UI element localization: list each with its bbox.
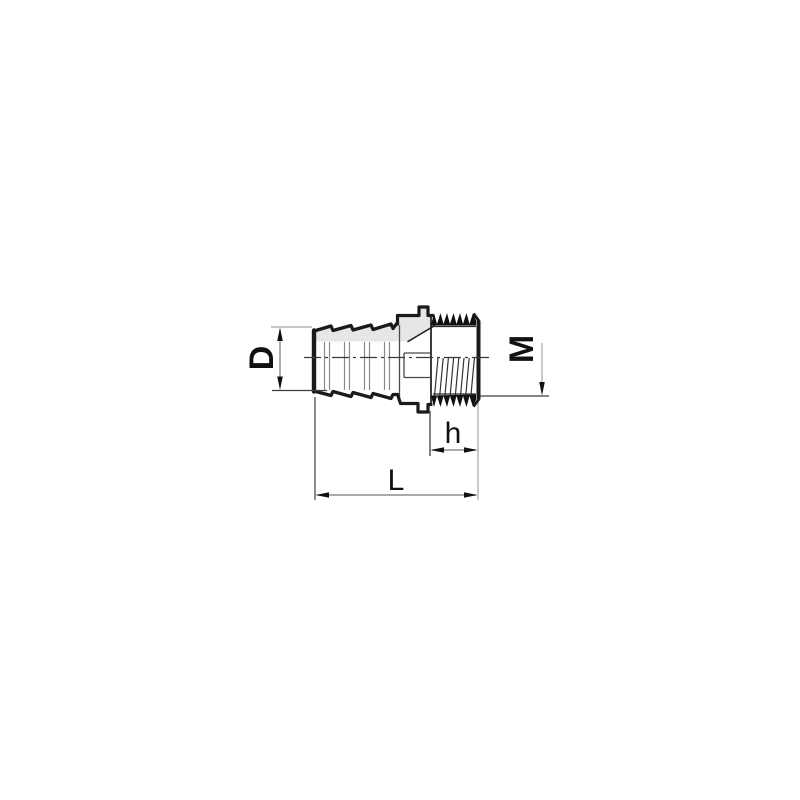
dimension-m: M <box>480 335 549 396</box>
thread-teeth-top <box>431 313 476 326</box>
technical-drawing: D M h L <box>0 0 800 800</box>
barb-bottom-profile <box>314 391 398 399</box>
dim-m-label: M <box>503 335 541 363</box>
dim-h-label: h <box>445 417 462 450</box>
dim-h-arrow-left <box>431 447 445 453</box>
dim-l-arrow-left <box>316 492 330 498</box>
dim-d-label: D <box>243 346 281 371</box>
dim-l-arrow-right <box>464 492 478 498</box>
dim-l-label: L <box>388 464 405 497</box>
dim-h-arrow-right <box>464 447 478 453</box>
dimension-h: h <box>430 403 478 500</box>
barb-ring-lines <box>325 342 390 390</box>
drawing-page: D M h L <box>0 0 800 800</box>
dim-d-arrow-up <box>277 328 283 342</box>
thread-teeth-bottom <box>431 395 476 408</box>
dim-m-arrow-down <box>539 382 545 396</box>
collar-bottom-outline <box>398 395 432 413</box>
thread-flank-lines <box>435 358 475 396</box>
dim-d-arrow-down <box>277 377 283 391</box>
